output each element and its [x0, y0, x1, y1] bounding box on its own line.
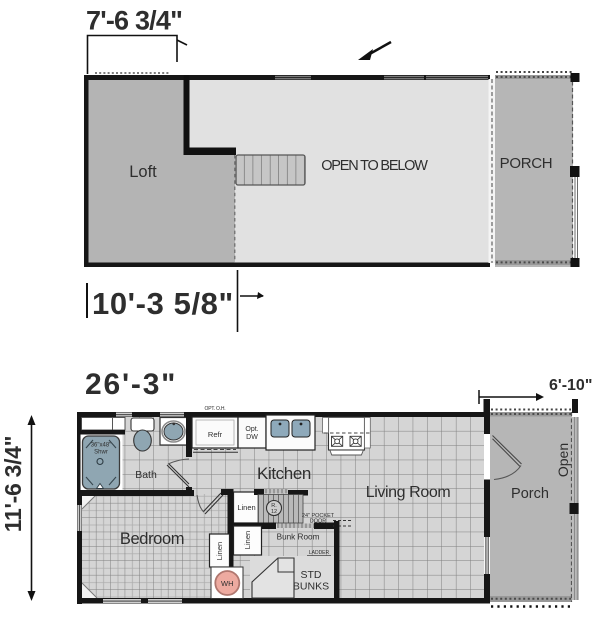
svg-text:STD: STD: [301, 569, 322, 581]
svg-text:Bunk Room: Bunk Room: [277, 533, 320, 542]
svg-text:Living Room: Living Room: [366, 484, 451, 501]
svg-text:Porch: Porch: [511, 486, 549, 502]
svg-text:Bath: Bath: [135, 469, 157, 481]
svg-text:DOOR: DOOR: [310, 519, 327, 525]
svg-text:36"x48": 36"x48": [91, 443, 112, 449]
svg-text:10'-3 5/8": 10'-3 5/8": [92, 286, 234, 321]
svg-text:OPEN TO BELOW: OPEN TO BELOW: [321, 158, 428, 174]
svg-text:Open: Open: [555, 443, 571, 477]
svg-text:7'-6 3/4": 7'-6 3/4": [86, 6, 182, 36]
svg-text:DW: DW: [246, 434, 258, 441]
svg-text:Opt.: Opt.: [245, 426, 258, 433]
svg-text:PORCH: PORCH: [500, 155, 553, 172]
svg-text:WH: WH: [221, 579, 234, 588]
svg-text:Linen: Linen: [243, 531, 252, 549]
svg-text:Kitchen: Kitchen: [257, 464, 311, 483]
svg-text:Linen: Linen: [215, 542, 224, 560]
svg-text:Linen: Linen: [237, 503, 255, 512]
svg-text:OPT. O.H.: OPT. O.H.: [205, 406, 226, 412]
svg-text:26'-3": 26'-3": [85, 368, 177, 401]
svg-text:BUNKS: BUNKS: [293, 581, 329, 593]
svg-text:Loft: Loft: [129, 163, 157, 181]
svg-text:Shwr: Shwr: [94, 450, 108, 456]
svg-text:11'-6 3/4": 11'-6 3/4": [0, 436, 26, 533]
svg-text:6'-10": 6'-10": [549, 377, 592, 394]
svg-text:Refr: Refr: [208, 430, 223, 439]
svg-text:Bedroom: Bedroom: [120, 530, 184, 548]
svg-text:12: 12: [271, 509, 277, 515]
